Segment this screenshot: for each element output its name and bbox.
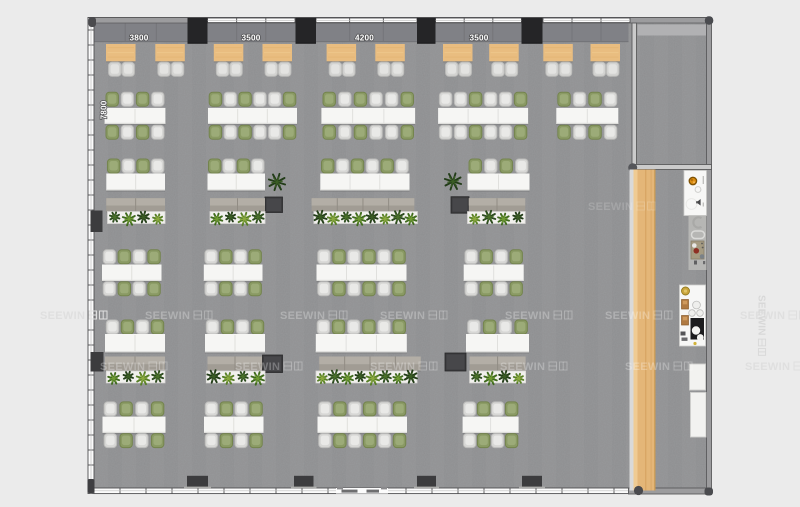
svg-text:SEEWIN: SEEWIN: [605, 310, 650, 322]
svg-text:SEEWIN: SEEWIN: [40, 310, 85, 322]
svg-text:SEEWIN: SEEWIN: [235, 361, 280, 373]
svg-text:SEEWIN: SEEWIN: [100, 361, 145, 373]
svg-text:SEEWIN: SEEWIN: [588, 201, 633, 213]
svg-text:SEEWIN: SEEWIN: [745, 361, 790, 373]
svg-text:7800: 7800: [100, 100, 109, 119]
svg-text:SEEWIN: SEEWIN: [145, 310, 190, 322]
svg-text:3800: 3800: [129, 34, 148, 43]
svg-text:SEEWIN: SEEWIN: [755, 295, 766, 336]
svg-text:SEEWIN: SEEWIN: [500, 361, 545, 373]
svg-text:SEEWIN: SEEWIN: [280, 310, 325, 322]
svg-text:3500: 3500: [469, 34, 488, 43]
svg-text:4200: 4200: [355, 34, 374, 43]
svg-text:SEEWIN: SEEWIN: [370, 361, 415, 373]
svg-text:SEEWIN: SEEWIN: [380, 310, 425, 322]
svg-text:3500: 3500: [241, 34, 260, 43]
svg-text:SEEWIN: SEEWIN: [625, 361, 670, 373]
svg-text:SEEWIN: SEEWIN: [505, 310, 550, 322]
